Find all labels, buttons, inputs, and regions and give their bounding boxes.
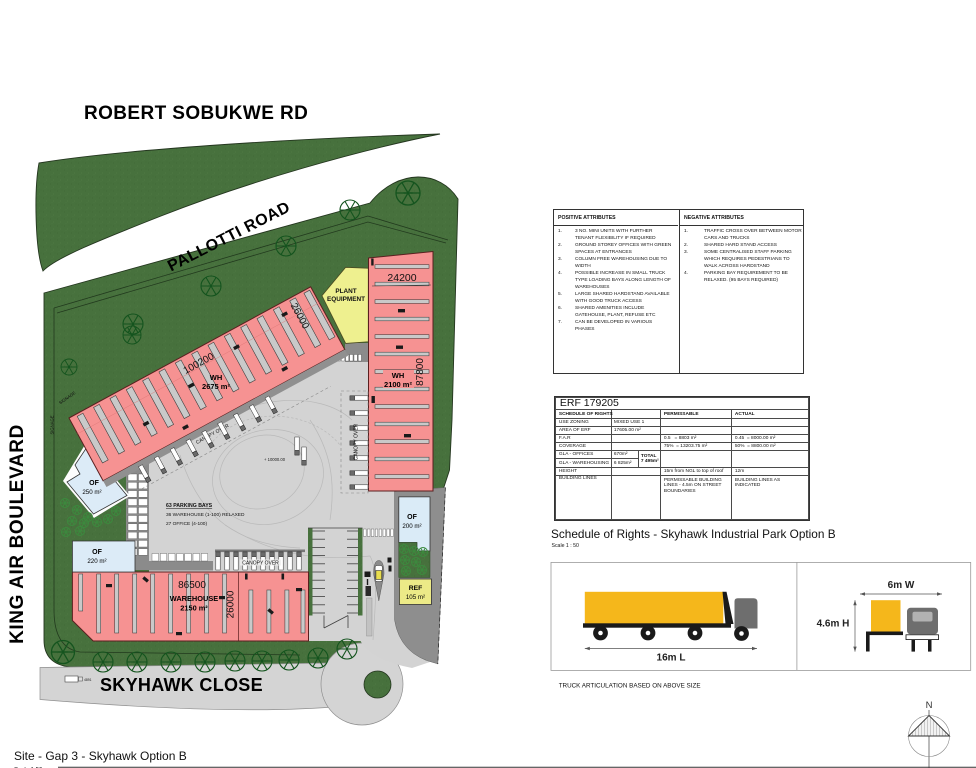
svg-text:16m L: 16m L <box>657 653 686 664</box>
svg-text:WAREHOUSE: WAREHOUSE <box>170 594 219 603</box>
svg-text:220 m²: 220 m² <box>87 558 106 565</box>
svg-text:2150 m²: 2150 m² <box>180 604 208 613</box>
svg-text:SIGNAGE: SIGNAGE <box>50 415 55 434</box>
svg-text:WH: WH <box>210 373 223 382</box>
svg-text:OF: OF <box>407 514 417 521</box>
svg-text:6m W: 6m W <box>888 580 915 591</box>
svg-text:Site - Gap 3 - Skyhawk Option: Site - Gap 3 - Skyhawk Option B <box>14 749 187 763</box>
svg-text:4891: 4891 <box>84 678 92 682</box>
svg-text:SKYHAWK CLOSE: SKYHAWK CLOSE <box>100 675 263 695</box>
svg-text:EQUIPMENT: EQUIPMENT <box>327 296 365 303</box>
svg-text:TRUCK ARTICULATION BASED ON AB: TRUCK ARTICULATION BASED ON ABOVE SIZE <box>559 683 701 690</box>
svg-text:87800: 87800 <box>415 358 426 386</box>
svg-text:250 m²: 250 m² <box>82 489 101 496</box>
svg-text:REF: REF <box>409 585 423 592</box>
svg-text:ROBERT SOBUKWE RD: ROBERT SOBUKWE RD <box>84 103 308 124</box>
svg-text:63 PARKING BAYS: 63 PARKING BAYS <box>166 503 213 509</box>
svg-text:36 WAREHOUSE (1-100) RELAXED: 36 WAREHOUSE (1-100) RELAXED <box>166 512 245 518</box>
svg-text:+ 10000.00: + 10000.00 <box>264 457 286 462</box>
svg-text:CANOPY OVER: CANOPY OVER <box>242 561 279 567</box>
svg-text:105 m²: 105 m² <box>406 594 425 601</box>
svg-text:OF: OF <box>92 549 102 556</box>
svg-text:86500: 86500 <box>178 580 206 591</box>
svg-text:4.6m H: 4.6m H <box>817 619 850 630</box>
svg-text:CANOPY OVER: CANOPY OVER <box>354 423 360 460</box>
svg-text:OF: OF <box>89 480 99 487</box>
svg-text:27 OFFICE (4-100): 27 OFFICE (4-100) <box>166 521 207 527</box>
svg-text:PLANT: PLANT <box>335 288 356 295</box>
svg-text:200 m²: 200 m² <box>402 523 421 530</box>
svg-text:24200: 24200 <box>387 272 416 284</box>
svg-text:N: N <box>926 700 933 711</box>
svg-text:2100 m²: 2100 m² <box>384 380 412 389</box>
svg-text:2675 m²: 2675 m² <box>202 382 230 391</box>
svg-text:26000: 26000 <box>226 590 237 618</box>
svg-text:WH: WH <box>392 371 405 380</box>
svg-text:KING AIR BOULEVARD: KING AIR BOULEVARD <box>7 424 28 644</box>
